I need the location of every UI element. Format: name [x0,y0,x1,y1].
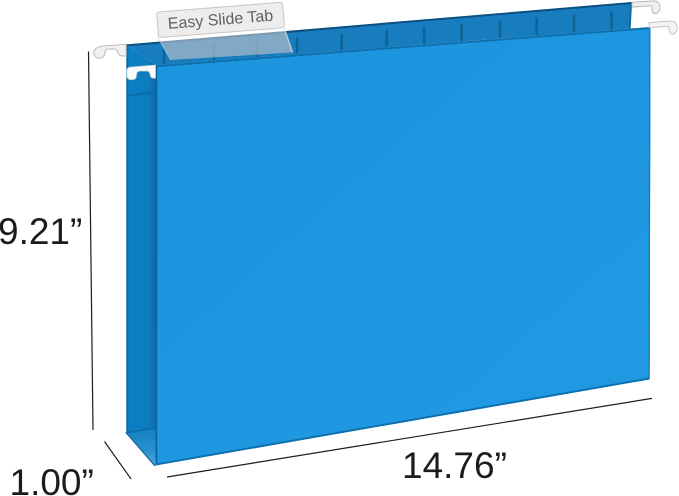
svg-text:1.00”: 1.00” [10,462,94,496]
svg-text:14.76”: 14.76” [402,445,507,486]
svg-text:9.21”: 9.21” [0,211,82,252]
